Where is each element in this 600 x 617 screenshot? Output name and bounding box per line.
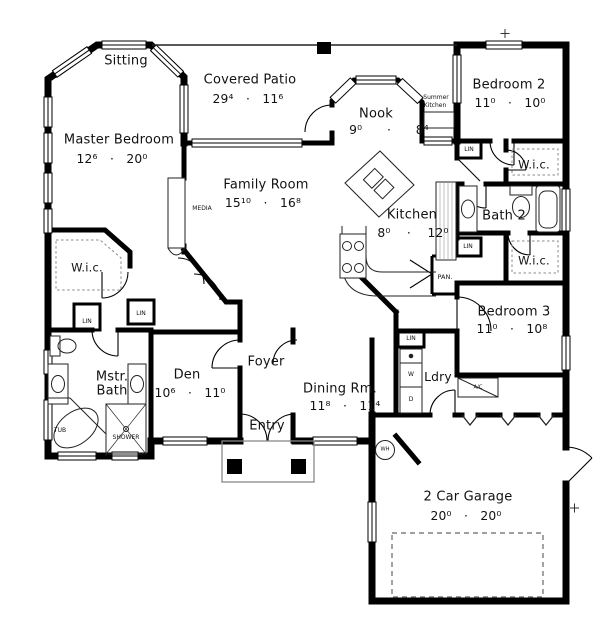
label-bedroom-3: Bedroom 3 (477, 306, 550, 319)
label-washer: W (408, 372, 414, 378)
label-tub: TUB (54, 428, 66, 434)
label-nook: Nook (359, 108, 393, 121)
label-lin-master-1: LIN (82, 319, 92, 325)
label-ac: A/C (474, 385, 483, 390)
label-wic-master: W.i.c. (71, 262, 103, 274)
label-pantry: PAN. (438, 274, 453, 281)
label-foyer: Foyer (247, 356, 284, 369)
label-lin-laundry: LIN (406, 336, 416, 342)
label-lin-kitchen-hall: LIN (463, 244, 473, 250)
label-entry: Entry (249, 420, 285, 433)
labels-overlay: Sitting Covered Patio 29⁴ · 11⁶ Master B… (0, 0, 600, 617)
label-bath-2: Bath 2 (482, 210, 526, 223)
label-laundry: Ldry (424, 371, 452, 383)
label-water-heater: WH (380, 447, 389, 452)
label-master-bedroom: Master Bedroom (64, 134, 174, 147)
dims-bedroom-3: 11⁰ · 10⁸ (476, 323, 547, 335)
dims-kitchen: 8⁰ · 12⁰ (377, 227, 448, 239)
label-wic-1: W.i.c. (518, 159, 550, 171)
label-garage: 2 Car Garage (424, 491, 513, 504)
label-master-bath-2: Bath (96, 385, 127, 398)
label-kitchen: Kitchen (387, 209, 437, 222)
label-summer-kitchen-2: Kitchen (424, 103, 447, 109)
dims-covered-patio: 29⁴ · 11⁶ (212, 93, 283, 105)
label-lin-master-2: LIN (136, 311, 146, 317)
label-lin-bedroom2-hall: LIN (464, 147, 474, 153)
dims-family-room: 15¹⁰ · 16⁸ (225, 197, 301, 209)
label-summer-kitchen-1: Summer (423, 95, 448, 101)
dims-dining: 11⁸ · 11⁴ (309, 400, 380, 412)
label-master-bath-1: Mstr. (96, 371, 128, 384)
label-covered-patio: Covered Patio (204, 74, 297, 87)
label-media: MEDIA (192, 206, 211, 212)
label-family-room: Family Room (223, 179, 308, 192)
dims-nook: 9⁰ · 8⁴ (349, 124, 429, 136)
dims-den: 10⁶ · 11⁰ (154, 387, 225, 399)
dims-master-bedroom: 12⁶ · 20⁰ (76, 153, 147, 165)
label-shower: SHOWER (113, 435, 140, 441)
dims-garage: 20⁰ · 20⁰ (430, 510, 501, 522)
label-dryer: D (409, 397, 414, 403)
label-wic-2: W.i.c. (518, 255, 550, 267)
label-sitting: Sitting (104, 55, 148, 68)
label-dining: Dining Rm. (303, 383, 377, 396)
floor-plan: Sitting Covered Patio 29⁴ · 11⁶ Master B… (0, 0, 600, 617)
dims-bedroom-2: 11⁰ · 10⁰ (474, 97, 545, 109)
label-den: Den (174, 369, 201, 382)
label-bedroom-2: Bedroom 2 (472, 79, 545, 92)
